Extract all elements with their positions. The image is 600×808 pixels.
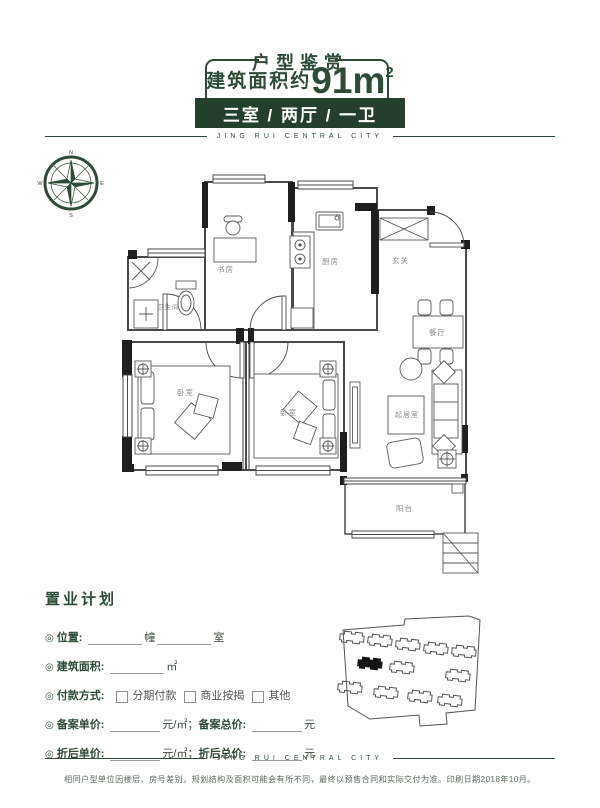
checkbox-mortgage (184, 691, 196, 703)
checkbox-installment (116, 691, 128, 703)
bullet-icon: ◎ (45, 691, 54, 703)
room-label-bedroom1: 卧室 (177, 387, 194, 397)
dining-chair (418, 349, 431, 364)
area-superscript: 2 (385, 64, 393, 81)
divider-line (393, 758, 555, 759)
room-label-bathroom: 卫生间 (157, 302, 180, 311)
divider-line (45, 136, 207, 137)
compass-icon: N S W E (37, 150, 104, 219)
dining-chair (440, 349, 453, 364)
room-label-dining: 餐厅 (429, 328, 446, 337)
location-room-blank (157, 633, 211, 645)
checkbox-other (252, 691, 264, 703)
highlighted-building (357, 657, 382, 670)
site-buildings (337, 631, 476, 707)
room-label-study: 书房 (217, 264, 234, 274)
round-table (400, 358, 422, 380)
compass-west: W (37, 181, 43, 187)
divider-line (45, 758, 207, 759)
form-row-area: ◎ 建筑面积: ㎡ (45, 658, 325, 674)
form-title: 置业计划 (45, 588, 325, 609)
washer (452, 484, 463, 493)
area-label: 建筑面积约 (206, 71, 311, 92)
divider-line (393, 136, 555, 137)
brand-name: JING RUI CENTRAL CITY (207, 133, 393, 140)
room-label-balcony: 阳台 (396, 503, 413, 513)
room-label-kitchen: 厨房 (322, 256, 339, 266)
stairs (443, 533, 478, 573)
kitchen-cabinet (291, 308, 313, 328)
brand-divider-top: JING RUI CENTRAL CITY (45, 133, 555, 140)
disclaimer-text: 相同户型单位因楼层、房号差别，规划结构及面积可能会有所不同，最终以预售合同和实际… (0, 774, 600, 785)
room-label-living: 起居室 (395, 410, 419, 419)
dining-chair (440, 300, 453, 315)
site-plan-map (328, 610, 518, 760)
form-row-location: ◎ 位置: 幢 室 (45, 629, 325, 645)
compass-south: S (69, 213, 73, 219)
form-row-record-price: ◎ 备案单价: 元/㎡； 备案总价: 元 (45, 716, 325, 732)
floorplan-drawing: N S W E (0, 145, 600, 590)
compass-north: N (69, 150, 73, 156)
site-boundary (343, 616, 480, 726)
dining-chair (418, 300, 431, 315)
layout-badge: 三室 / 两厅 / 一卫 (195, 98, 405, 128)
bullet-icon: ◎ (45, 662, 54, 674)
location-building-blank (88, 633, 142, 645)
armchair (386, 437, 424, 469)
area-blank (110, 662, 164, 674)
desk (214, 238, 256, 262)
flyer-page: 户型鉴赏 建筑面积约91m2 三室 / 两厅 / 一卫 JING RUI CEN… (0, 0, 600, 808)
purchase-plan-form: 置业计划 ◎ 位置: 幢 室 ◎ 建筑面积: ㎡ ◎ 付款方式: 分期付款 商业… (45, 588, 325, 761)
bullet-icon: ◎ (45, 720, 54, 732)
record-total-blank (252, 720, 302, 732)
brand-name: JING RUI CENTRAL CITY (207, 755, 393, 762)
bullet-icon: ◎ (45, 633, 54, 645)
compass-east: E (100, 181, 104, 187)
form-row-payment: ◎ 付款方式: 分期付款 商业按揭 其他 (45, 687, 325, 703)
area-line: 建筑面积约91m2 (0, 60, 600, 102)
brand-divider-bottom: JING RUI CENTRAL CITY (45, 755, 555, 762)
area-value: 91m (311, 60, 385, 101)
record-unit-blank (110, 720, 160, 732)
room-label-entry: 玄关 (392, 255, 409, 265)
room-label-bedroom2: 卧室 (280, 407, 297, 417)
toilet-tank (176, 281, 196, 289)
